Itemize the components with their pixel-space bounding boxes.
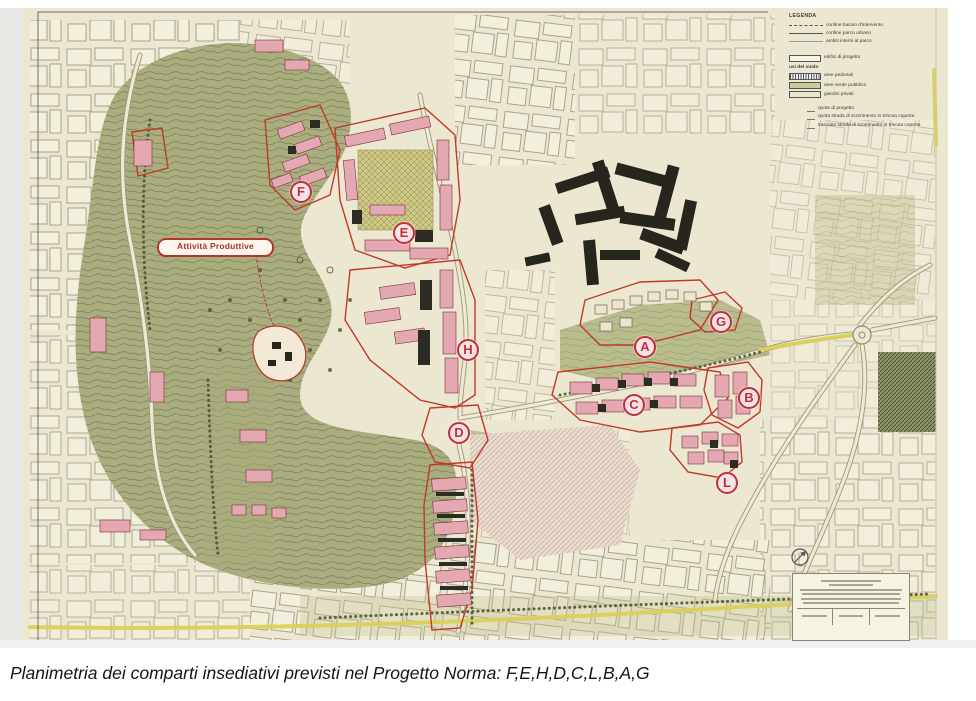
legend-swatch	[789, 91, 821, 98]
legend-swatch	[789, 41, 823, 42]
legend-swatch	[807, 114, 815, 120]
title-block-line	[800, 589, 903, 591]
comparto-marker-h: H	[457, 339, 479, 361]
title-block-line	[821, 580, 880, 582]
slide-page: Attività Produttive FEHDAGCBL LEGENDA co…	[0, 0, 976, 701]
legend-item: aree pedonali	[789, 73, 965, 80]
legend-item: giardini privati	[789, 91, 965, 98]
title-block	[792, 573, 910, 641]
title-block-line	[803, 602, 898, 604]
legend-swatch	[789, 33, 823, 34]
legend-item: quote di progetto	[807, 106, 965, 112]
comparto-marker-l: L	[716, 472, 738, 494]
legend-item: aree verde pubblico	[789, 82, 965, 89]
building-swatch	[789, 55, 821, 62]
title-block-line	[801, 598, 900, 600]
legend-item: confine bacino d'intervento	[789, 23, 965, 29]
title-block-line	[802, 593, 899, 595]
title-block-line	[829, 584, 872, 586]
comparto-marker-e: E	[393, 222, 415, 244]
comparto-marker-d: D	[448, 422, 470, 444]
map-legend: LEGENDA confine bacino d'interventoconfi…	[789, 14, 965, 129]
comparto-marker-f: F	[290, 181, 312, 203]
legend-building-item: edifici di progetto	[789, 55, 965, 62]
legend-swatch	[789, 73, 821, 80]
caption: Planimetria dei comparti insediativi pre…	[10, 663, 970, 684]
title-block-cells	[797, 608, 905, 625]
comparto-marker-c: C	[623, 394, 645, 416]
comparto-marker-g: G	[710, 311, 732, 333]
legend-swatch	[807, 106, 815, 112]
legend-symbol-items: quote di progettoquota strada di scorrim…	[789, 106, 965, 129]
legend-item: quota strada di scorrimento in trincea c…	[807, 114, 965, 120]
comparto-marker-a: A	[634, 336, 656, 358]
legend-swatch	[807, 123, 815, 129]
legend-landuse-header: usi del suolo	[789, 65, 965, 71]
legend-item: confine parco urbano	[789, 31, 965, 37]
roundabout	[853, 326, 871, 344]
legend-line-items: confine bacino d'interventoconfine parco…	[789, 23, 965, 44]
legend-landuse-items: aree pedonaliaree verde pubblicogiardini…	[789, 73, 965, 99]
pink-fabric-zone	[470, 425, 640, 560]
legend-swatch	[789, 82, 821, 89]
productive-area-label: Attività Produttive	[157, 238, 274, 257]
comparto-marker-b: B	[738, 387, 760, 409]
legend-swatch	[789, 25, 823, 26]
legend-title: LEGENDA	[789, 14, 965, 20]
legend-item: tracciato strada di scorrimento in trinc…	[807, 123, 965, 129]
